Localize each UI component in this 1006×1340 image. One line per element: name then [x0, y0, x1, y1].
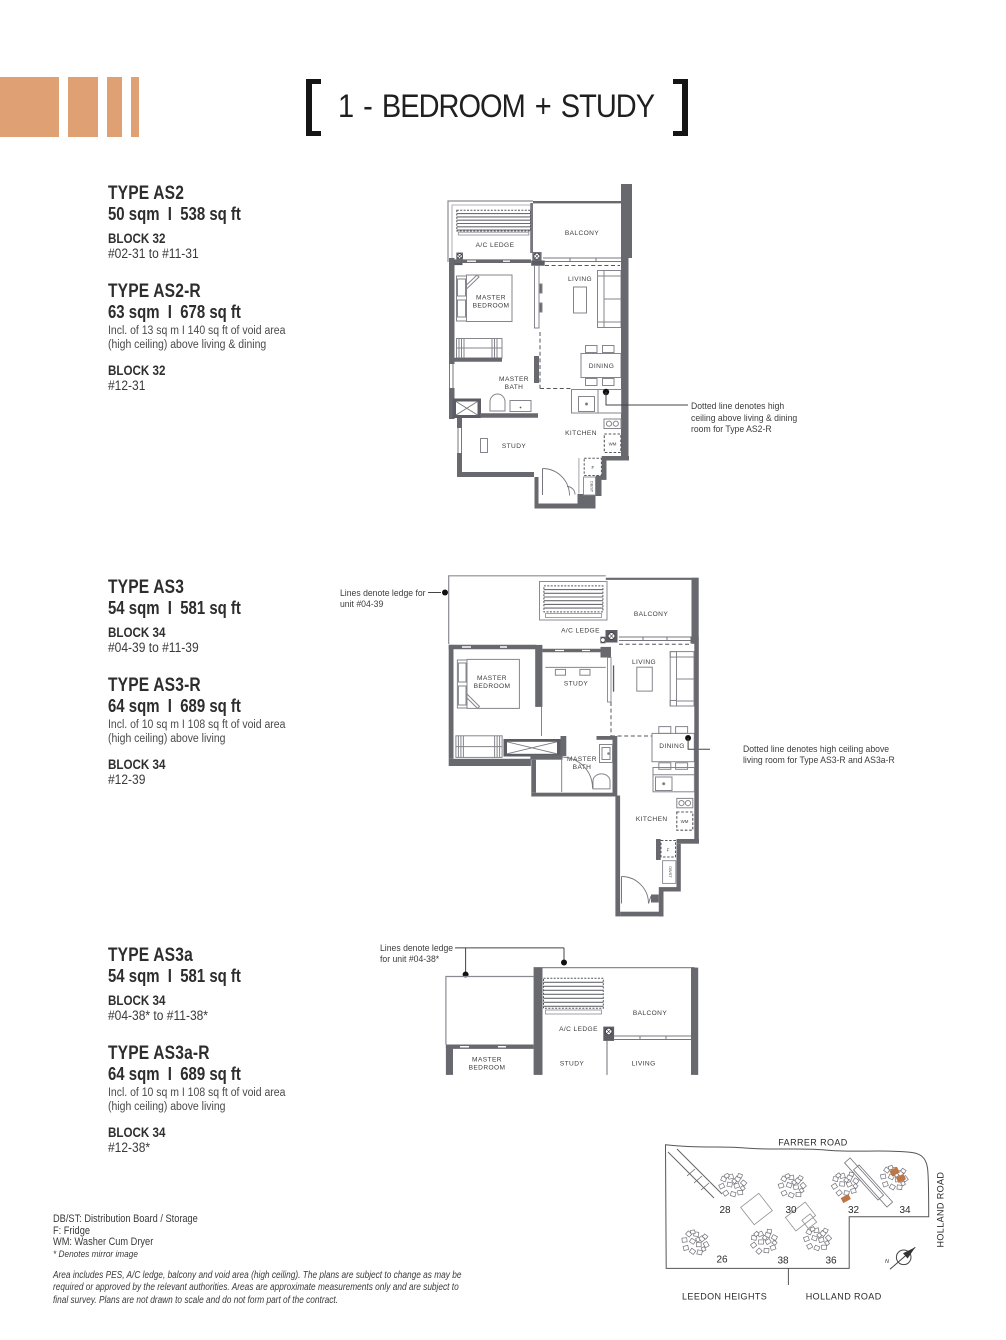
svg-text:STUDY: STUDY: [502, 443, 527, 450]
svg-text:BEDROOM: BEDROOM: [474, 683, 511, 690]
svg-text:LEEDON HEIGHTS: LEEDON HEIGHTS: [682, 1292, 767, 1302]
svg-text:34: 34: [899, 1205, 911, 1216]
svg-text:28: 28: [719, 1205, 731, 1216]
svg-text:F: F: [591, 465, 594, 470]
svg-text:HOLLAND ROAD: HOLLAND ROAD: [806, 1292, 882, 1302]
svg-text:HOLLAND ROAD: HOLLAND ROAD: [936, 1172, 946, 1248]
svg-text:KITCHEN: KITCHEN: [565, 430, 597, 437]
svg-text:BEDROOM: BEDROOM: [473, 303, 510, 310]
svg-text:A/C LEDGE: A/C LEDGE: [561, 628, 600, 635]
svg-text:A/C LEDGE: A/C LEDGE: [559, 1026, 598, 1033]
svg-text:N: N: [885, 1259, 889, 1265]
svg-text:STUDY: STUDY: [564, 681, 589, 688]
svg-text:32: 32: [848, 1205, 860, 1216]
svg-text:LIVING: LIVING: [632, 659, 656, 666]
svg-text:36: 36: [825, 1256, 837, 1267]
svg-text:MASTER: MASTER: [499, 376, 529, 383]
svg-text:MASTER: MASTER: [477, 675, 507, 682]
svg-text:BEDROOM: BEDROOM: [469, 1065, 506, 1072]
svg-text:BALCONY: BALCONY: [565, 230, 600, 237]
svg-text:BALCONY: BALCONY: [633, 1010, 668, 1017]
svg-text:30: 30: [785, 1205, 797, 1216]
svg-text:LIVING: LIVING: [568, 276, 592, 283]
svg-text:BALCONY: BALCONY: [634, 611, 669, 618]
svg-text:MASTER: MASTER: [567, 756, 597, 763]
svg-text:FARRER ROAD: FARRER ROAD: [778, 1138, 848, 1148]
svg-text:F: F: [667, 848, 670, 853]
svg-text:WM: WM: [609, 442, 617, 447]
svg-text:MASTER: MASTER: [476, 295, 506, 302]
svg-text:DB/ST: DB/ST: [668, 866, 672, 878]
svg-text:DINING: DINING: [589, 363, 614, 370]
svg-text:DB/ST: DB/ST: [590, 481, 594, 493]
svg-text:KITCHEN: KITCHEN: [636, 816, 668, 823]
svg-text:LIVING: LIVING: [632, 1061, 656, 1068]
svg-text:WM: WM: [681, 819, 689, 824]
svg-text:STUDY: STUDY: [560, 1061, 585, 1068]
svg-text:MASTER: MASTER: [472, 1057, 502, 1064]
svg-text:BATH: BATH: [505, 384, 524, 391]
svg-text:DINING: DINING: [659, 743, 684, 750]
svg-text:26: 26: [716, 1255, 728, 1266]
svg-text:A/C LEDGE: A/C LEDGE: [476, 242, 515, 249]
svg-text:38: 38: [777, 1256, 789, 1267]
